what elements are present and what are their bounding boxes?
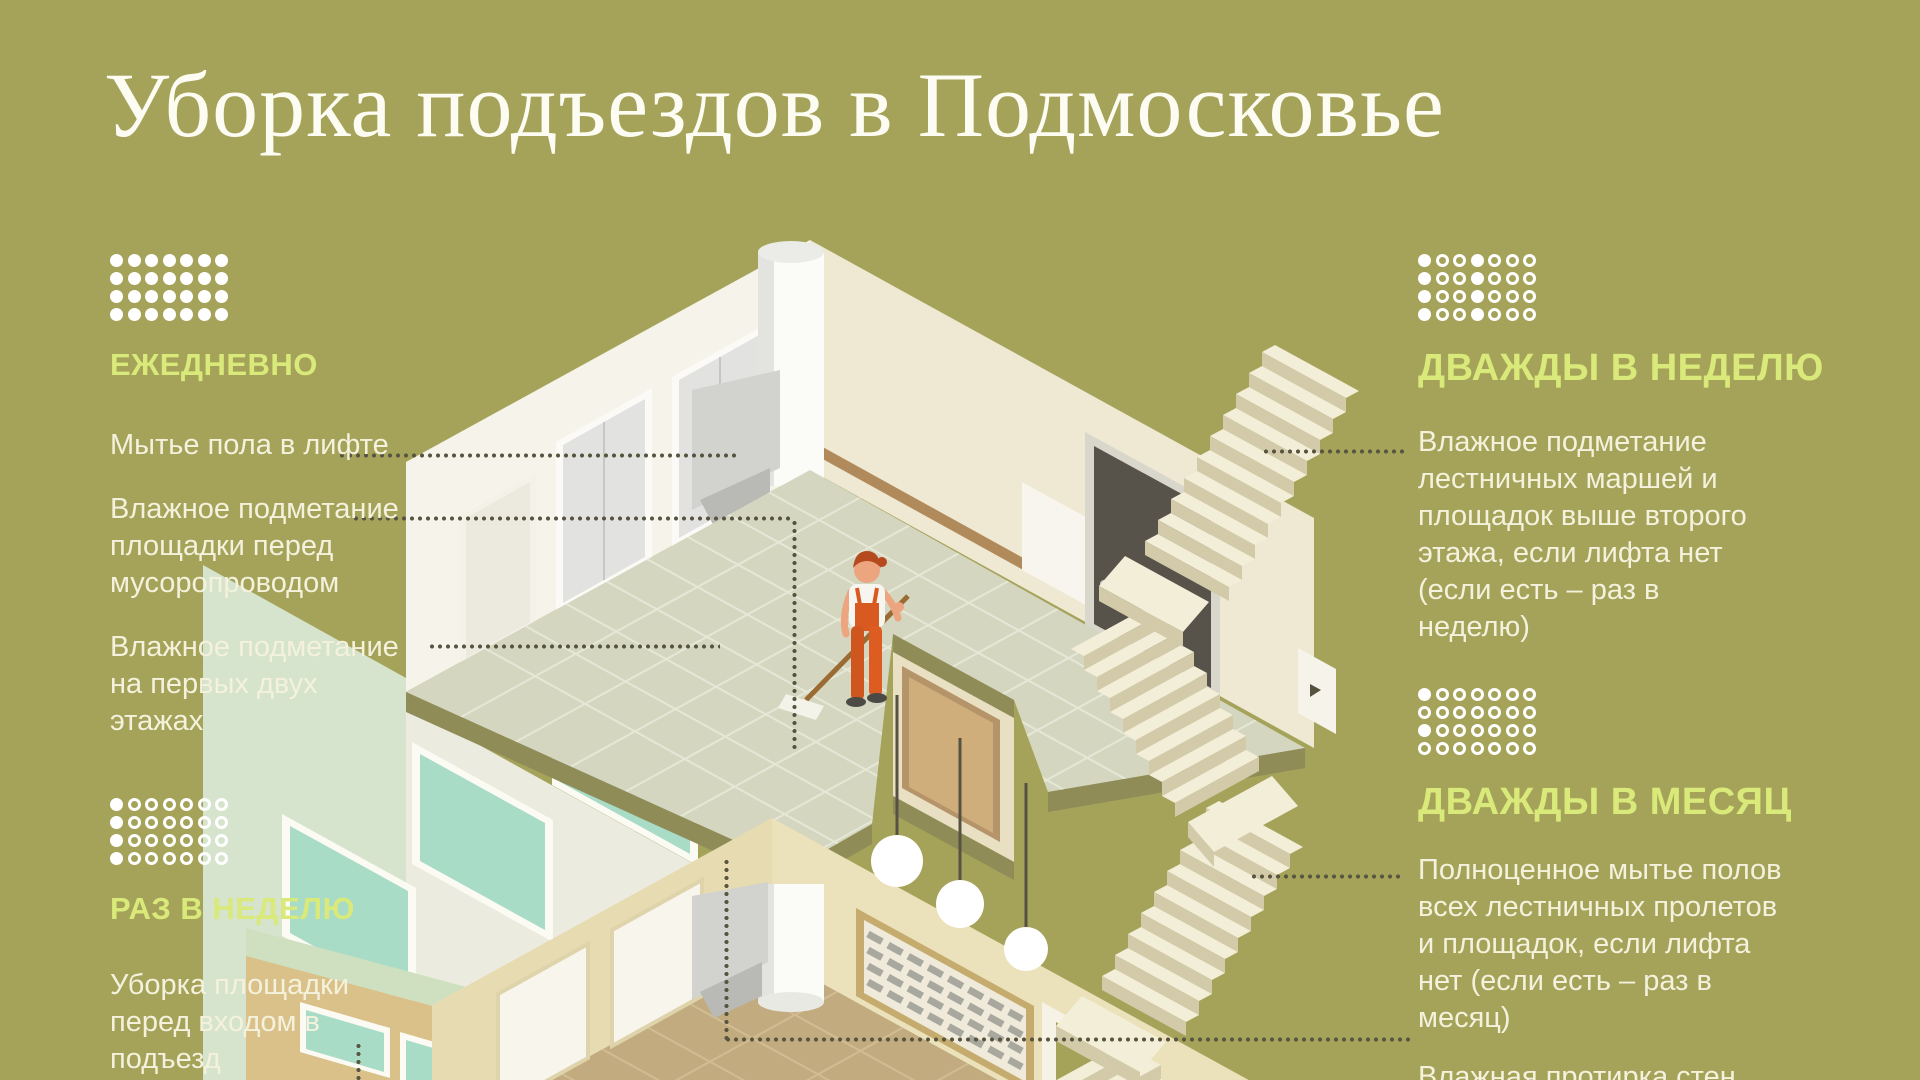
schedule-item: Мытье пола в лифте: [110, 427, 415, 464]
filled-day-dot: [163, 290, 176, 303]
filled-day-dot: [110, 290, 123, 303]
filled-day-dot: [145, 290, 158, 303]
empty-day-dot: [1488, 308, 1501, 321]
empty-day-dot: [1436, 724, 1449, 737]
overalls-leg: [869, 626, 882, 696]
empty-day-dot: [1453, 742, 1466, 755]
empty-day-dot: [1453, 290, 1466, 303]
filled-day-dot: [1471, 308, 1484, 321]
section-heading: РАЗ В НЕДЕЛЮ: [110, 891, 455, 927]
filled-day-dot: [110, 798, 123, 811]
schedule-item: Влажная протирка стен, потолков, плафоно…: [1418, 1059, 1790, 1080]
filled-day-dot: [163, 308, 176, 321]
empty-day-dot: [1523, 272, 1536, 285]
empty-day-dot: [1488, 688, 1501, 701]
section-heading: ДВАЖДЫ В МЕСЯЦ: [1418, 781, 1838, 824]
empty-day-dot: [180, 834, 193, 847]
section-items: Уборка площадки перед входом в подъезд: [110, 967, 455, 1078]
frequency-dot-grid-daily: [110, 254, 228, 321]
empty-day-dot: [1418, 706, 1431, 719]
frequency-dot-grid-twice-weekly: [1418, 254, 1536, 321]
empty-day-dot: [1453, 688, 1466, 701]
empty-day-dot: [1471, 706, 1484, 719]
filled-day-dot: [180, 290, 193, 303]
garbage-chute-pipe-lower: [692, 882, 824, 1018]
filled-day-dot: [1418, 254, 1431, 267]
section-items: Влажное подметание лестничных маршей и п…: [1418, 424, 1838, 646]
empty-day-dot: [1523, 688, 1536, 701]
filled-day-dot: [180, 272, 193, 285]
empty-day-dot: [128, 798, 141, 811]
empty-day-dot: [1488, 724, 1501, 737]
filled-day-dot: [110, 254, 123, 267]
empty-day-dot: [1436, 254, 1449, 267]
empty-day-dot: [128, 834, 141, 847]
filled-day-dot: [1418, 290, 1431, 303]
filled-day-dot: [198, 272, 211, 285]
filled-day-dot: [145, 272, 158, 285]
empty-day-dot: [180, 798, 193, 811]
filled-day-dot: [215, 308, 228, 321]
section-twice-monthly: ДВАЖДЫ В МЕСЯЦ Полноценное мытье полов в…: [1418, 688, 1838, 1080]
filled-day-dot: [1418, 724, 1431, 737]
empty-day-dot: [180, 852, 193, 865]
empty-day-dot: [163, 834, 176, 847]
filled-day-dot: [163, 254, 176, 267]
filled-day-dot: [128, 290, 141, 303]
empty-day-dot: [1506, 290, 1519, 303]
leader-line-stair-washing: [1250, 874, 1404, 879]
filled-day-dot: [110, 816, 123, 829]
empty-day-dot: [1436, 308, 1449, 321]
empty-day-dot: [1523, 724, 1536, 737]
shoe: [867, 693, 887, 703]
empty-day-dot: [1523, 742, 1536, 755]
empty-day-dot: [215, 798, 228, 811]
filled-day-dot: [145, 308, 158, 321]
filled-day-dot: [215, 290, 228, 303]
frequency-dot-grid-weekly: [110, 798, 228, 865]
empty-day-dot: [215, 834, 228, 847]
empty-day-dot: [163, 852, 176, 865]
empty-day-dot: [1488, 742, 1501, 755]
leader-line-first-floors: [428, 644, 720, 649]
frequency-dot-grid-twice-monthly: [1418, 688, 1536, 755]
leader-line-chute-drop: [792, 519, 797, 751]
filled-day-dot: [180, 254, 193, 267]
empty-day-dot: [215, 852, 228, 865]
empty-day-dot: [1506, 272, 1519, 285]
empty-day-dot: [1506, 742, 1519, 755]
empty-day-dot: [198, 816, 211, 829]
filled-day-dot: [128, 272, 141, 285]
empty-day-dot: [1506, 724, 1519, 737]
empty-day-dot: [1488, 706, 1501, 719]
empty-day-dot: [1453, 308, 1466, 321]
empty-day-dot: [128, 816, 141, 829]
empty-day-dot: [128, 852, 141, 865]
filled-day-dot: [110, 308, 123, 321]
filled-day-dot: [198, 308, 211, 321]
empty-day-dot: [163, 816, 176, 829]
empty-day-dot: [198, 834, 211, 847]
empty-day-dot: [145, 852, 158, 865]
filled-day-dot: [128, 308, 141, 321]
section-daily: ЕЖЕДНЕВНО Мытье пола в лифтеВлажное подм…: [110, 254, 455, 767]
chute-hopper-lower: [692, 882, 768, 1018]
empty-day-dot: [1523, 706, 1536, 719]
empty-day-dot: [1506, 688, 1519, 701]
empty-day-dot: [1471, 742, 1484, 755]
filled-day-dot: [110, 852, 123, 865]
empty-day-dot: [1436, 272, 1449, 285]
filled-day-dot: [215, 254, 228, 267]
filled-day-dot: [128, 254, 141, 267]
filled-day-dot: [1471, 272, 1484, 285]
empty-day-dot: [1436, 706, 1449, 719]
empty-day-dot: [145, 816, 158, 829]
infographic-poster: Уборка подъездов в Подмосковье ЕЖЕДНЕВНО…: [0, 0, 1920, 1080]
empty-day-dot: [1436, 290, 1449, 303]
schedule-item: Полноценное мытье полов всех лестничных …: [1418, 852, 1790, 1037]
empty-day-dot: [1471, 688, 1484, 701]
filled-day-dot: [1418, 688, 1431, 701]
empty-day-dot: [1523, 254, 1536, 267]
filled-day-dot: [1418, 308, 1431, 321]
filled-day-dot: [1471, 290, 1484, 303]
section-twice-weekly: ДВАЖДЫ В НЕДЕЛЮ Влажное подметание лестн…: [1418, 254, 1838, 673]
filled-day-dot: [198, 254, 211, 267]
filled-day-dot: [198, 290, 211, 303]
empty-day-dot: [1471, 724, 1484, 737]
empty-day-dot: [1453, 254, 1466, 267]
empty-day-dot: [145, 834, 158, 847]
empty-day-dot: [1523, 290, 1536, 303]
filled-day-dot: [1471, 254, 1484, 267]
schedule-item: Влажное подметание площадки перед мусоро…: [110, 491, 415, 602]
filled-day-dot: [180, 308, 193, 321]
schedule-item: Уборка площадки перед входом в подъезд: [110, 967, 425, 1078]
leader-line-stair-flights: [1262, 449, 1404, 454]
empty-day-dot: [1523, 308, 1536, 321]
empty-day-dot: [1453, 272, 1466, 285]
empty-day-dot: [1488, 254, 1501, 267]
empty-day-dot: [145, 798, 158, 811]
shoe: [846, 697, 866, 707]
section-weekly: РАЗ В НЕДЕЛЮ Уборка площадки перед входо…: [110, 798, 455, 1080]
empty-day-dot: [198, 798, 211, 811]
empty-day-dot: [1506, 706, 1519, 719]
section-heading: ЕЖЕДНЕВНО: [110, 347, 455, 383]
empty-day-dot: [1453, 706, 1466, 719]
section-items: Мытье пола в лифтеВлажное подметание пло…: [110, 427, 455, 740]
schedule-item: Влажное подметание лестничных маршей и п…: [1418, 424, 1774, 646]
page-title: Уборка подъездов в Подмосковье: [104, 52, 1824, 158]
section-items: Полноценное мытье полов всех лестничных …: [1418, 852, 1838, 1080]
empty-day-dot: [180, 816, 193, 829]
empty-day-dot: [1488, 272, 1501, 285]
overalls-leg: [851, 626, 864, 700]
empty-day-dot: [1488, 290, 1501, 303]
filled-day-dot: [145, 254, 158, 267]
leader-line-walls-drop: [724, 858, 729, 1040]
filled-day-dot: [1418, 272, 1431, 285]
empty-day-dot: [163, 798, 176, 811]
empty-day-dot: [1453, 724, 1466, 737]
empty-day-dot: [198, 852, 211, 865]
filled-day-dot: [163, 272, 176, 285]
empty-day-dot: [1436, 742, 1449, 755]
section-heading: ДВАЖДЫ В НЕДЕЛЮ: [1418, 347, 1838, 390]
empty-day-dot: [1418, 742, 1431, 755]
empty-day-dot: [1436, 688, 1449, 701]
leader-line-walls: [724, 1037, 1410, 1042]
empty-day-dot: [215, 816, 228, 829]
filled-day-dot: [110, 272, 123, 285]
empty-day-dot: [1506, 254, 1519, 267]
schedule-item: Влажное подметание на первых двух этажах: [110, 629, 415, 740]
empty-day-dot: [1506, 308, 1519, 321]
filled-day-dot: [110, 834, 123, 847]
filled-day-dot: [215, 272, 228, 285]
